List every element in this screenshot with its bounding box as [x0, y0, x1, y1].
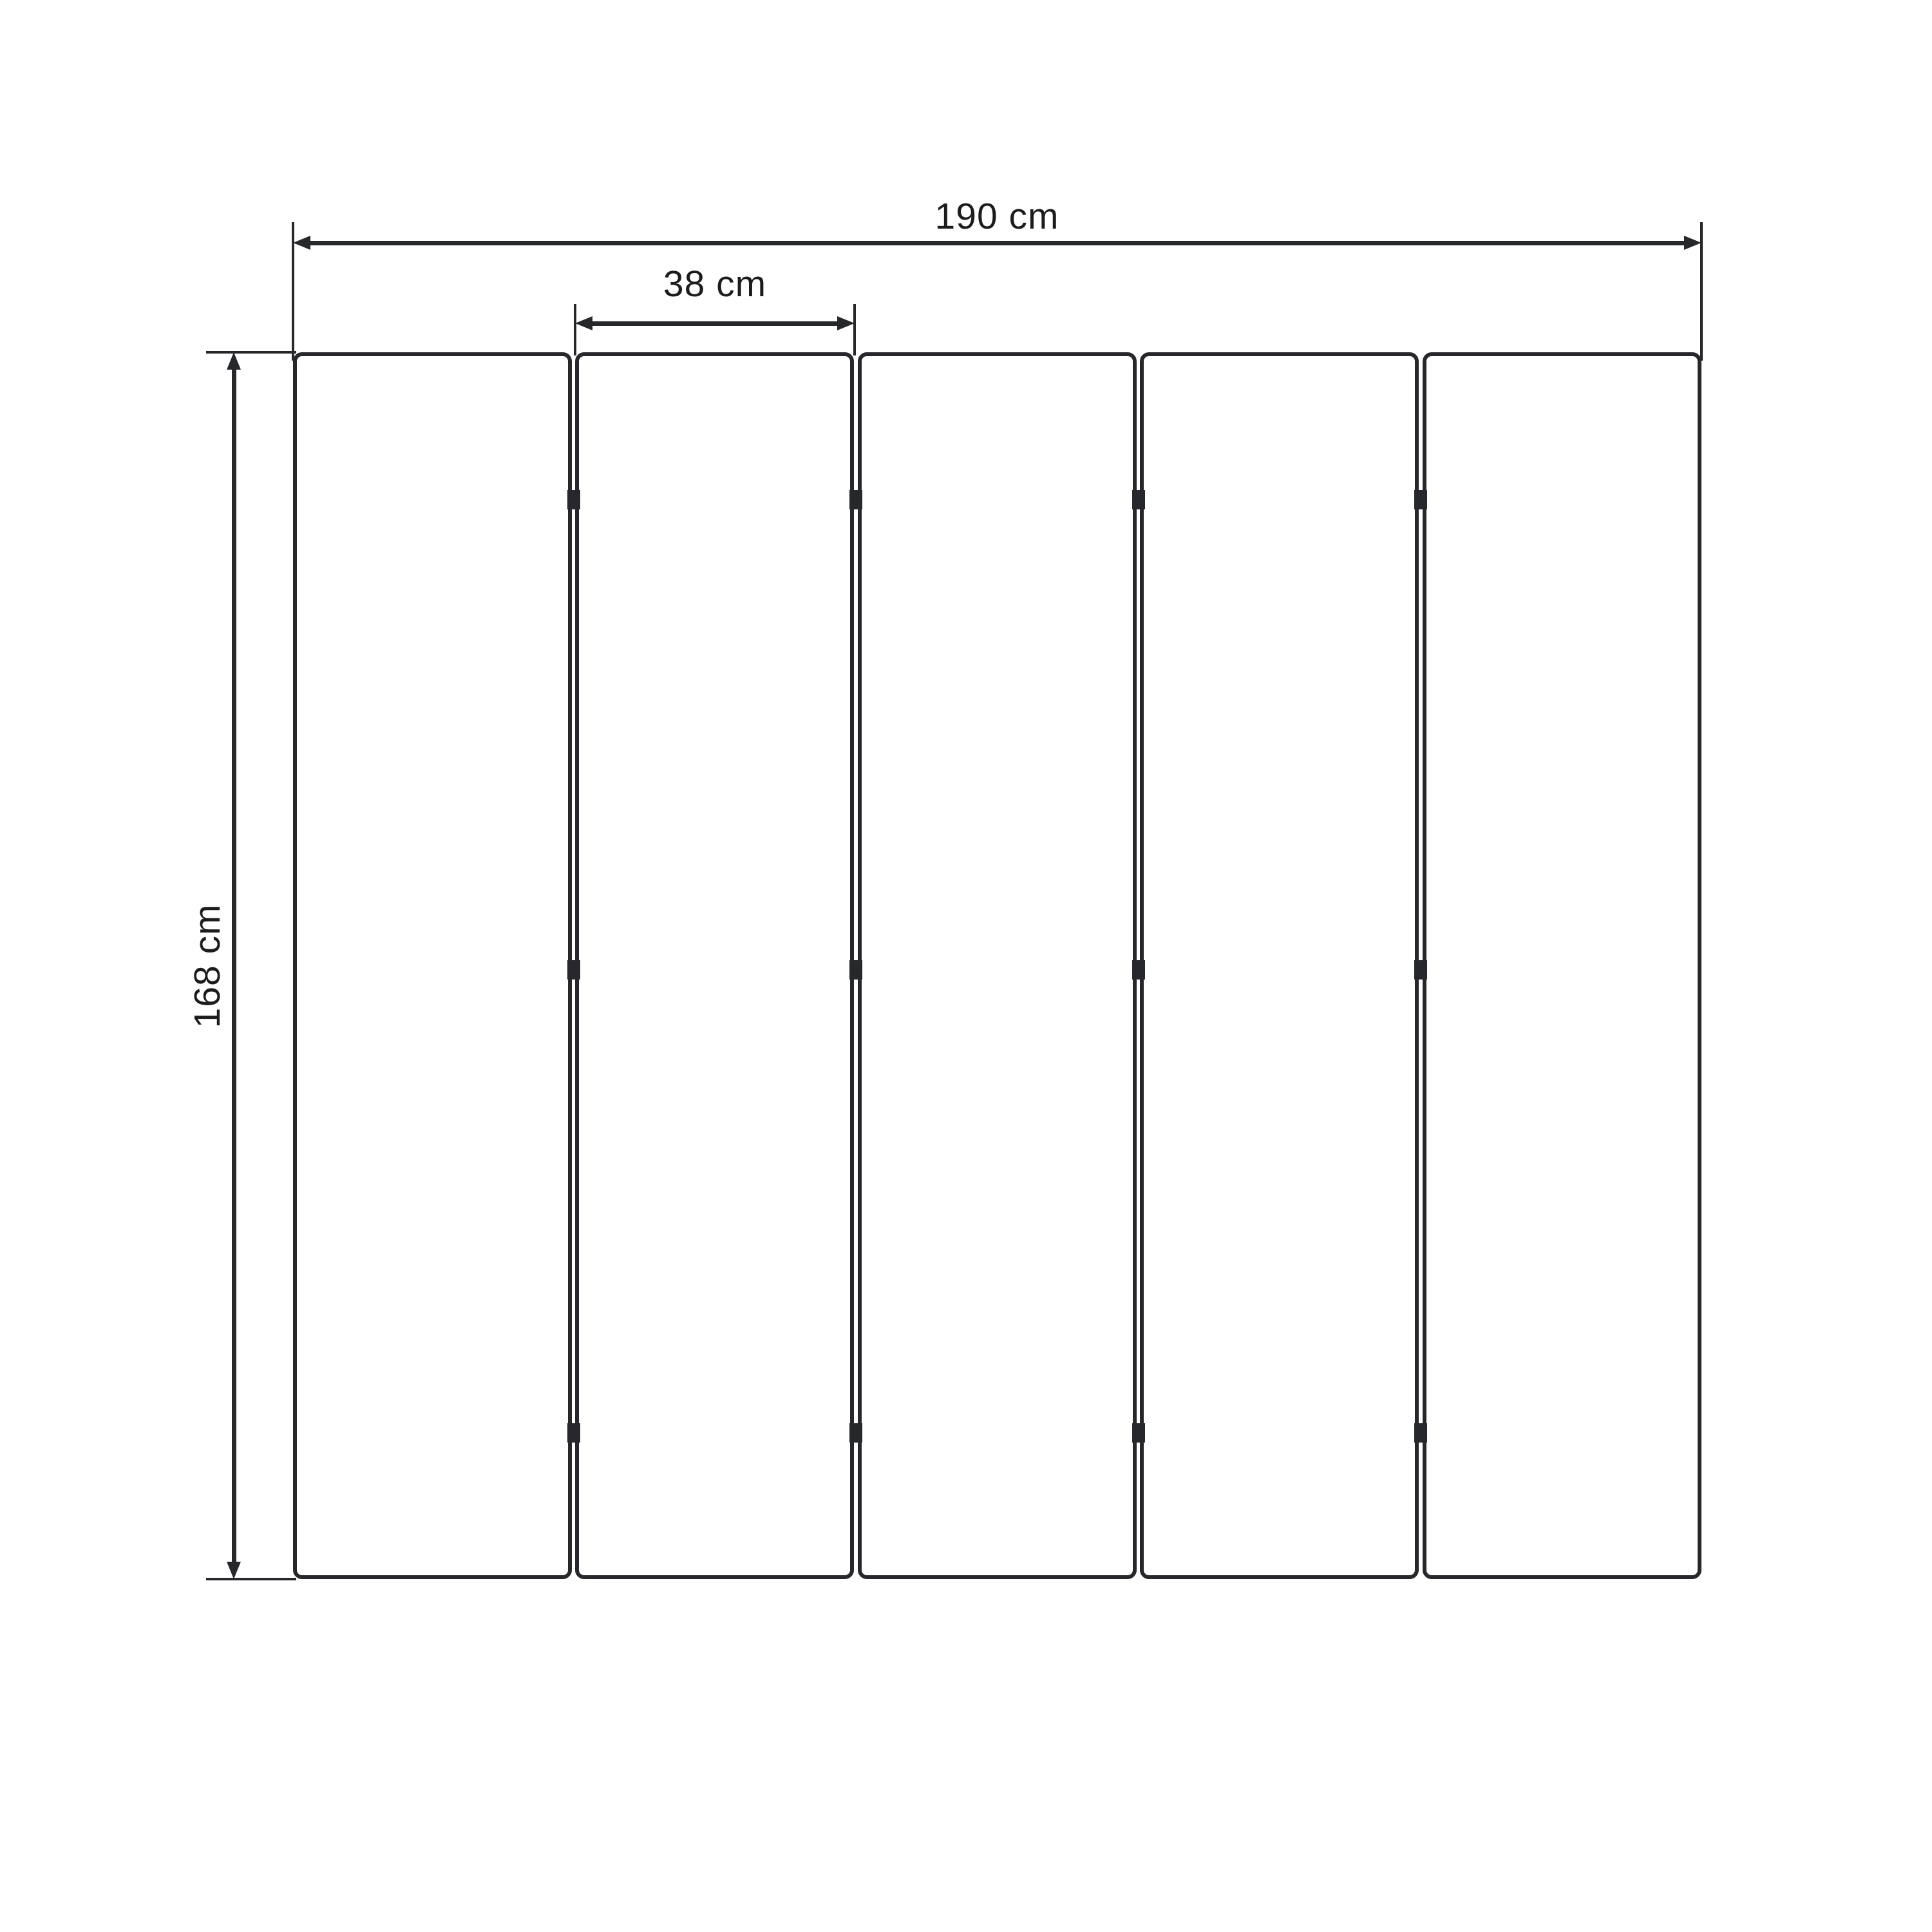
panel-4 [1140, 352, 1419, 1579]
panel-width-label: 38 cm [663, 263, 766, 305]
hinge-mark [1132, 490, 1145, 509]
hinge-mark [567, 490, 580, 509]
arrow-down-icon [227, 1562, 241, 1579]
hinge-mark [849, 1423, 862, 1443]
hinge-mark [849, 960, 862, 980]
hinge-mark [1414, 1423, 1427, 1443]
arrow-up-icon [227, 352, 241, 370]
arrow-left-icon [293, 236, 310, 250]
panel-3 [858, 352, 1137, 1579]
hinge-mark [1132, 960, 1145, 980]
panel-1 [293, 352, 572, 1579]
height-label: 168 cm [186, 904, 229, 1028]
total-width-label: 190 cm [935, 195, 1059, 238]
arrow-right-icon [1684, 236, 1701, 250]
hinge-mark [567, 960, 580, 980]
extension-line [206, 351, 296, 354]
dimension-line [232, 366, 236, 1566]
hinge-mark [567, 1423, 580, 1443]
hinge-mark [849, 490, 862, 509]
arrow-right-icon [837, 316, 855, 330]
dimension-line [588, 321, 842, 326]
hinge-mark [1414, 490, 1427, 509]
panel-5 [1423, 352, 1701, 1579]
hinge-mark [1414, 960, 1427, 980]
dimension-diagram: 190 cm 38 cm 168 cm [0, 0, 1932, 1932]
extension-line [206, 1578, 296, 1580]
dimension-line [306, 241, 1689, 245]
arrow-left-icon [575, 316, 592, 330]
hinge-mark [1132, 1423, 1145, 1443]
panel-2 [575, 352, 854, 1579]
